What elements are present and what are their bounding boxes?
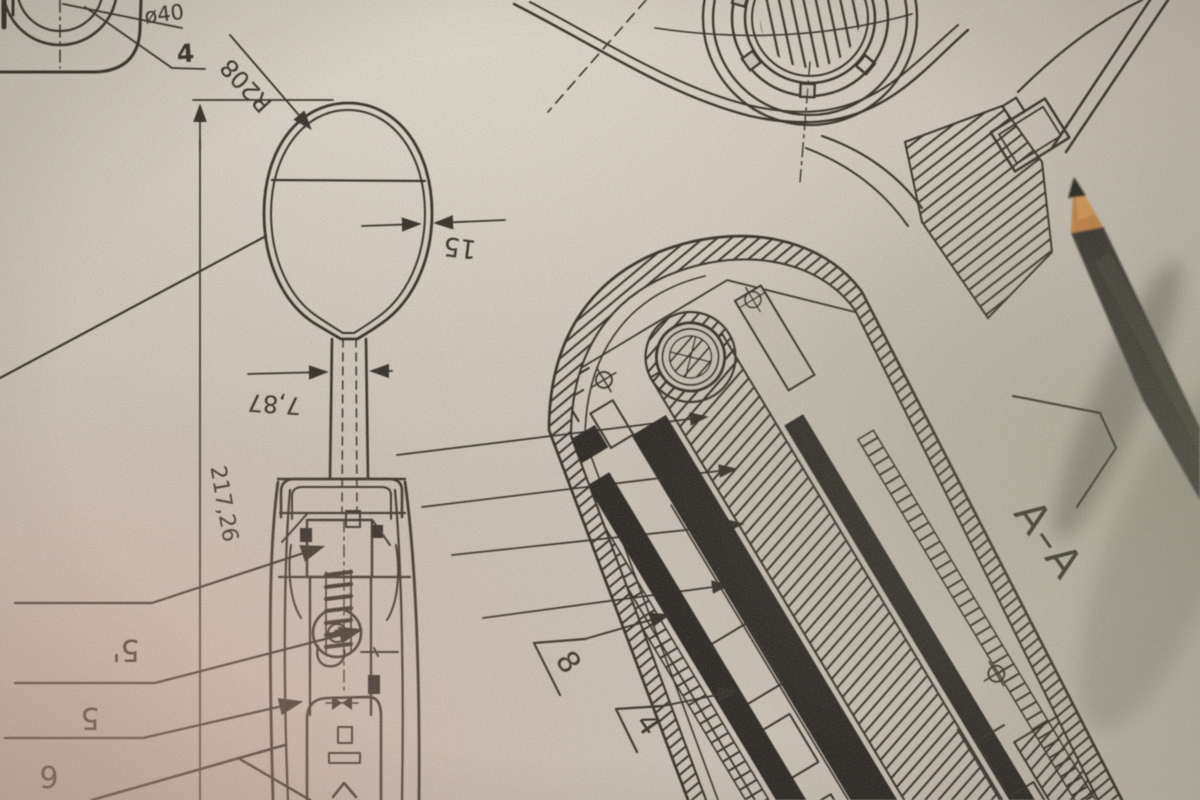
photo-of-technical-drawing: ø40 4 R208 15 7,87 217,26 [0, 0, 1200, 800]
vignette [0, 0, 1200, 800]
blueprint-photo: ø40 4 R208 15 7,87 217,26 [0, 0, 1200, 800]
